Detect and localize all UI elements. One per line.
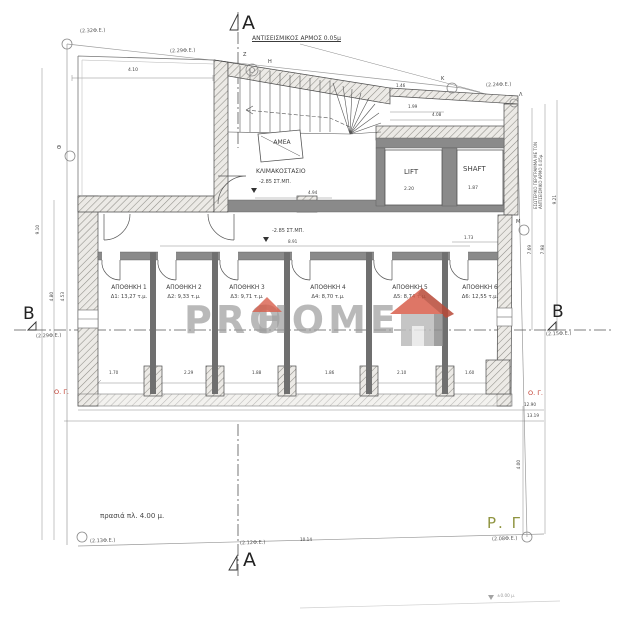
elevation-left-b: (2.29Φ.Ε.) [36,334,61,340]
room-2-label: ΑΠΟΘΗΚΗ 2 [151,286,217,292]
dim-room-2: 2.29 [184,371,193,375]
elevation-top-mid: (2.29Φ.Ε.) [170,49,195,55]
dim-right-2: 7.98 [541,245,545,254]
amea-platform [258,130,303,162]
room-4-label: ΑΠΟΘΗΚΗ 4 [295,286,361,292]
dim-lift-width: 2.20 [404,188,414,193]
dim-garden-depth: 4.00 [517,460,521,469]
survey-point-k: K [441,77,444,82]
dim-shaft-side: 1.73 [464,236,473,240]
side-note: ΕΣΩΤΕΡΙΚΟ ΠΕΡΙΓΡΑΜΜΑ ΜΕ ΤΟΝ ΑΝΤΙΣΕΙΣΜΙΚΟ… [534,142,543,209]
dim-lift-inner: 1.99 [408,105,417,109]
og-line-label-right: Ο. Γ. [528,390,543,397]
dim-room-5: 2.10 [397,371,406,375]
dim-stair-length: 4.94 [308,191,317,195]
dim-left-1: 9.10 [36,225,40,234]
dim-right-1: 9.21 [553,195,557,204]
section-a-top: A [242,14,255,33]
survey-point-l: Λ [519,93,522,98]
dim-corridor-length: 8.91 [288,240,297,244]
lift-label: LIFT [404,169,418,176]
dim-room-6: 1.60 [465,371,474,375]
top-left-block [78,56,214,196]
dim-street-front: 10.14 [300,538,312,542]
dim-top-block: 4.10 [128,69,138,74]
shaft-label: SHAFT [463,166,486,173]
floor-plan-canvas: A A B B ΑΝΤΙΣΕΙΣΜΙΚΟΣ ΑΡΜΟΣ 0.05μ (2.32Φ… [0,0,640,641]
elevation-bottom-left: (2.13Φ.Ε.) [90,539,115,545]
survey-point-z: Z [243,53,246,58]
section-a-bottom: A [243,551,256,570]
dimension-lines [42,44,557,540]
green-strip-label: πρασιά πλ. 4.00 μ. [100,513,164,520]
elevation-right-b: (2.15Φ.Ε.) [546,332,571,338]
dim-left-3: 4.53 [61,292,65,301]
dim-room-1: 1.70 [109,371,118,375]
room-6-label: ΑΠΟΘΗΚΗ 6 [447,286,513,292]
street-level-mark: ±0.00 μ. [497,594,515,598]
elevation-top-left: (2.32Φ.Ε.) [80,29,105,35]
stairwell-label: ΚΛΙΜΑΚΟΣΤΑΣΙΟ [256,169,306,175]
dim-overall-1: 12.90 [524,403,536,407]
corridor-level-mark: -2.85 ΣΤ.ΜΠ. [272,229,304,234]
watermark-small-roof-icon [252,297,282,313]
side-note-line-2: ΑΝΤΙΣΕΙΣΜΙΚΟ ΑΡΜΟ 0.05μ [539,142,543,209]
seismic-joint-note: ΑΝΤΙΣΕΙΣΜΙΚΟΣ ΑΡΜΟΣ 0.05μ [252,36,341,42]
survey-point-h: H [268,60,272,65]
section-b-left: B [23,306,35,323]
elevation-bottom-mid: (2.12Φ.Ε.) [240,541,265,547]
dim-overall-2: 13.19 [527,414,539,418]
survey-point-m: M [516,220,520,225]
section-b-right: B [552,304,564,321]
og-line-label-left: Ο. Γ. [54,389,69,396]
dim-room-3: 1.88 [252,371,261,375]
dim-left-2: 4.80 [50,292,54,301]
amea-label: ΑΜΕΑ [262,140,302,146]
survey-point-th: Θ [57,146,61,151]
dim-right-3: 7.69 [528,245,532,254]
dim-shaft-width: 1.87 [468,187,478,192]
room-6-area: Δ6: 12,55 τ.μ. [447,295,513,300]
stair-level-mark: -2.85 ΣΤ.ΜΠ. [259,180,291,185]
dim-joint-offset: 1.46 [396,84,405,88]
room-3-label: ΑΠΟΘΗΚΗ 3 [214,286,280,292]
dim-lift-block: 4.08 [432,113,441,117]
rg-line-label: Ρ. Γ [487,516,522,531]
watermark-house-icon [388,284,456,354]
elevation-bottom-right: (2.08Φ.Ε.) [492,537,517,543]
dim-room-4: 1.86 [325,371,334,375]
elevation-top-right: (2.24Φ.Ε.) [486,83,511,89]
